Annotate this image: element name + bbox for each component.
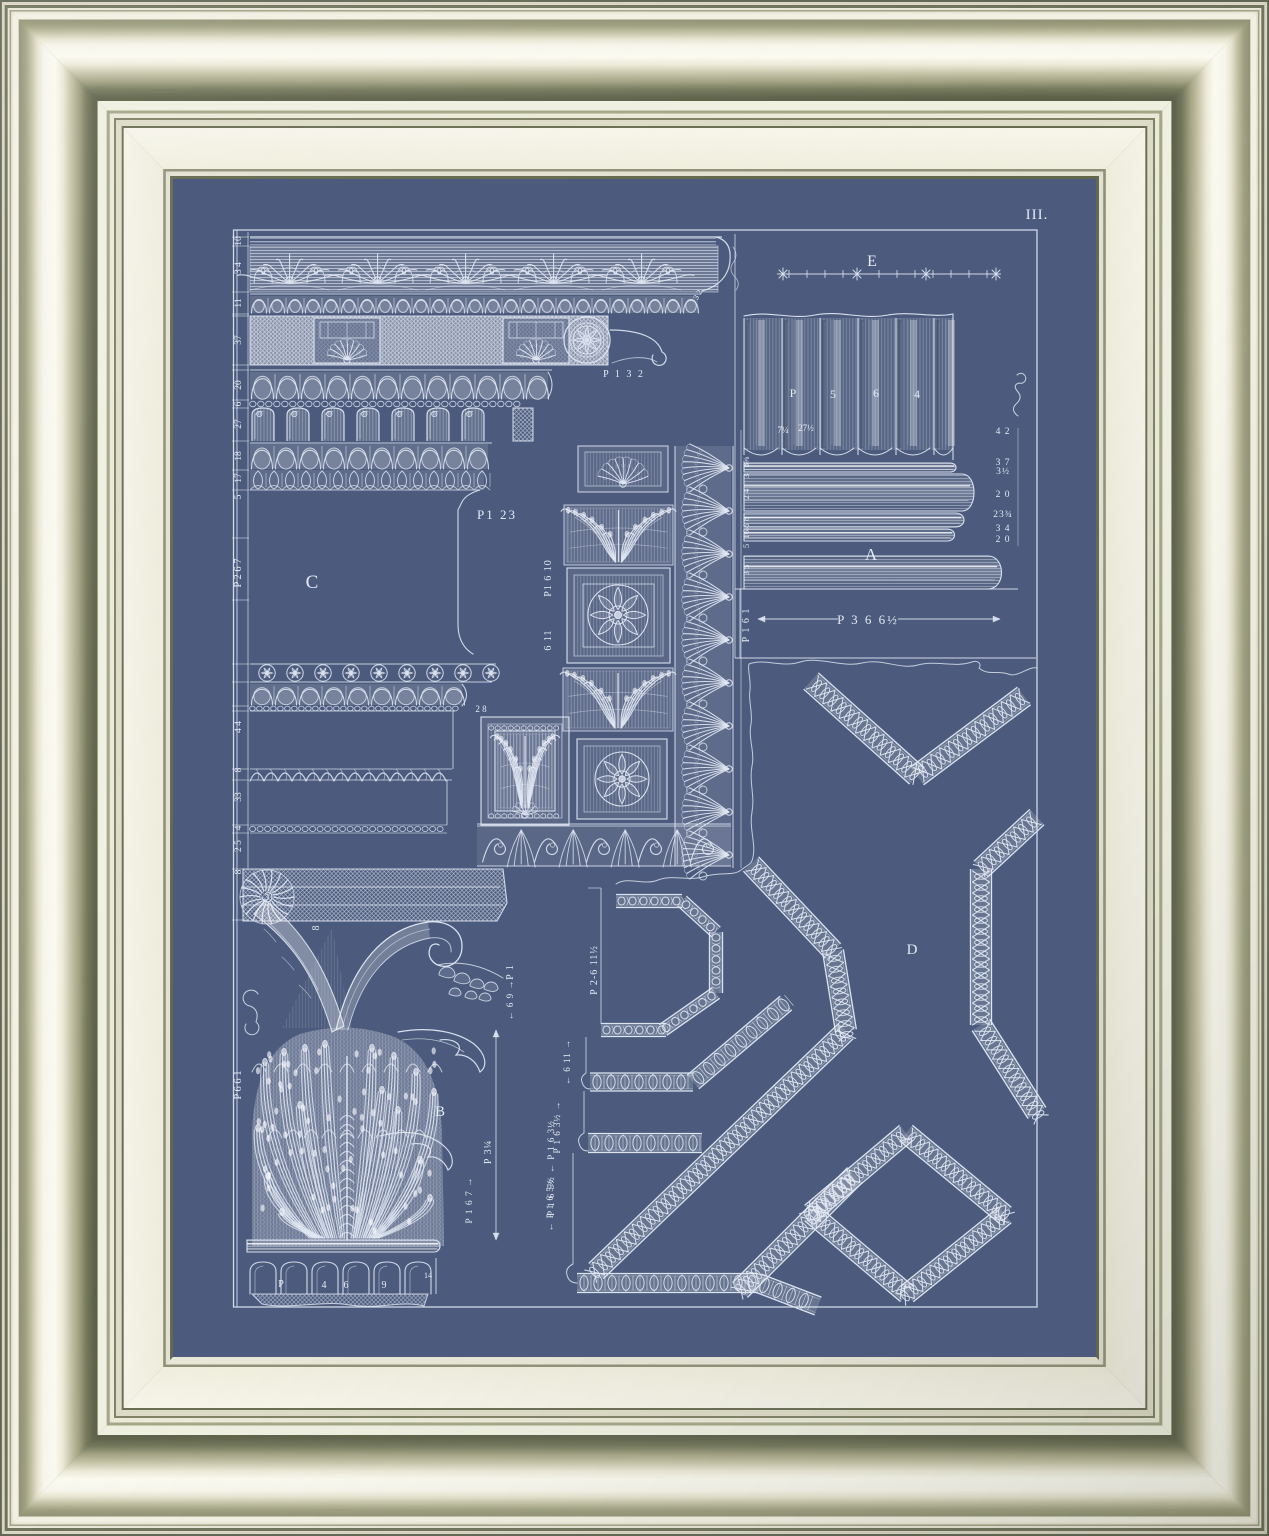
svg-text:← P 1 6 5½: ← P 1 6 5½ (545, 1179, 555, 1232)
svg-text:6 11: 6 11 (543, 629, 554, 650)
svg-text:← 6 11 →: ← 6 11 → (562, 1039, 572, 1085)
svg-text:4: 4 (234, 825, 244, 830)
svg-text:8: 8 (741, 517, 751, 521)
svg-text:2 8: 2 8 (475, 704, 487, 714)
svg-text:P: P (278, 1279, 284, 1290)
svg-text:3½: 3½ (996, 466, 1010, 477)
svg-text:P 1 6 1: P 1 6 1 (741, 608, 752, 643)
svg-text:37: 37 (234, 335, 244, 345)
svg-text:4 2: 4 2 (996, 427, 1011, 437)
svg-text:6: 6 (873, 386, 879, 400)
svg-text:5: 5 (830, 387, 836, 401)
svg-text:2 0: 2 0 (996, 490, 1011, 500)
svg-text:3 4: 3 4 (996, 524, 1011, 534)
svg-text:P 1 3 2: P 1 3 2 (603, 369, 645, 380)
svg-text:10: 10 (234, 236, 244, 246)
svg-text:P 1: P 1 (505, 964, 516, 980)
svg-text:P1 6 10: P1 6 10 (543, 559, 554, 597)
svg-text:← 6 9 →: ← 6 9 → (505, 980, 515, 1021)
svg-text:2 4: 2 4 (741, 488, 751, 499)
svg-text:4: 4 (914, 387, 920, 401)
svg-text:III.: III. (1026, 207, 1049, 223)
svg-text:5: 5 (741, 544, 751, 548)
svg-text:18: 18 (234, 451, 244, 461)
svg-text:14: 14 (424, 1271, 432, 1280)
svg-text:33: 33 (234, 792, 244, 802)
svg-text:6: 6 (234, 401, 244, 406)
svg-text:3 5: 3 5 (741, 565, 751, 576)
svg-text:7¼: 7¼ (777, 425, 789, 435)
svg-text:P1 23: P1 23 (477, 507, 517, 522)
svg-text:P: P (790, 386, 797, 400)
svg-text:P 1 6 3½ →: P 1 6 3½ → (552, 1101, 562, 1154)
svg-text:27: 27 (234, 419, 244, 429)
svg-text:3: 3 (741, 474, 751, 478)
svg-text:5: 5 (234, 494, 244, 499)
svg-text:17: 17 (234, 473, 244, 483)
svg-text:27½: 27½ (798, 423, 814, 433)
svg-text:8: 8 (234, 767, 244, 772)
svg-text:8⅝: 8⅝ (741, 456, 751, 467)
svg-text:P 3¼: P 3¼ (483, 1140, 494, 1164)
svg-text:P 2 6 7: P 2 6 7 (233, 558, 244, 587)
svg-text:23¾: 23¾ (993, 510, 1013, 520)
svg-text:D: D (907, 942, 918, 958)
svg-text:P 3 6 6½: P 3 6 6½ (837, 612, 899, 627)
svg-text:2 0: 2 0 (996, 535, 1011, 545)
svg-text:16½: 16½ (741, 523, 751, 539)
svg-text:P 1 6 7 →: P 1 6 7 → (465, 1176, 475, 1223)
svg-text:3 4: 3 4 (234, 262, 244, 274)
svg-text:8: 8 (311, 926, 322, 931)
svg-text:4 4: 4 4 (234, 721, 244, 733)
svg-text:11: 11 (234, 298, 244, 307)
svg-text:P 2-6 11½: P 2-6 11½ (589, 945, 600, 995)
svg-text:4: 4 (322, 1280, 327, 1291)
svg-text:6: 6 (344, 1280, 349, 1291)
svg-text:20: 20 (234, 380, 244, 390)
svg-text:E: E (867, 253, 877, 270)
svg-text:C: C (306, 572, 319, 593)
svg-text:9: 9 (382, 1280, 387, 1291)
svg-text:B: B (435, 1104, 445, 1120)
svg-text:P 6 6 1: P 6 6 1 (233, 1070, 244, 1099)
svg-text:2 5: 2 5 (234, 840, 244, 852)
